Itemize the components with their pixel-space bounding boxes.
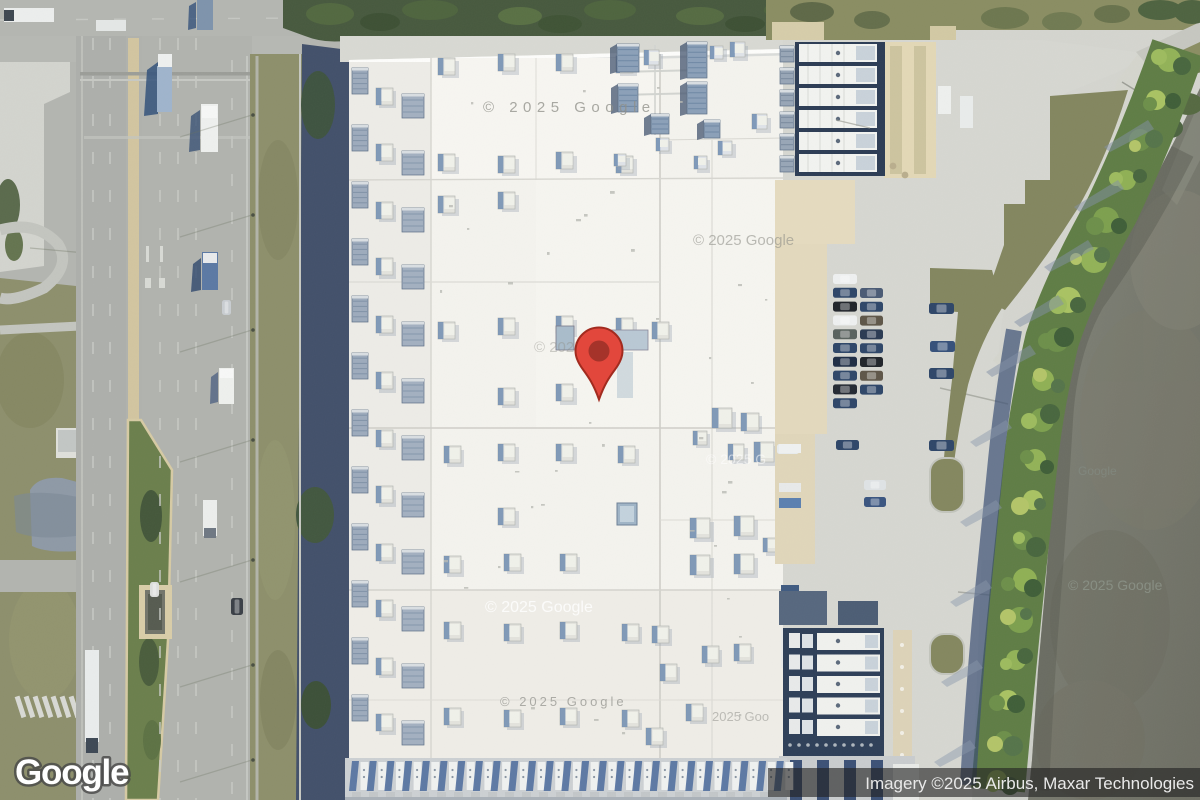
svg-text:Imagery ©2025 Airbus, Maxar Te: Imagery ©2025 Airbus, Maxar Technologies <box>865 774 1194 793</box>
svg-text:© 2025 Google: © 2025 Google <box>483 99 656 116</box>
svg-text:Google: Google <box>1078 464 1117 478</box>
svg-text:© 2025 Google: © 2025 Google <box>693 232 794 249</box>
svg-text:Google: Google <box>15 753 129 792</box>
svg-text:2025 Goo: 2025 Goo <box>712 709 769 724</box>
svg-text:© 2025 G: © 2025 G <box>706 451 766 467</box>
svg-text:© 2025 Google: © 2025 Google <box>1068 577 1163 593</box>
svg-text:© 2025 Google: © 2025 Google <box>485 599 593 616</box>
svg-text:© 2025 Google: © 2025 Google <box>500 694 627 709</box>
